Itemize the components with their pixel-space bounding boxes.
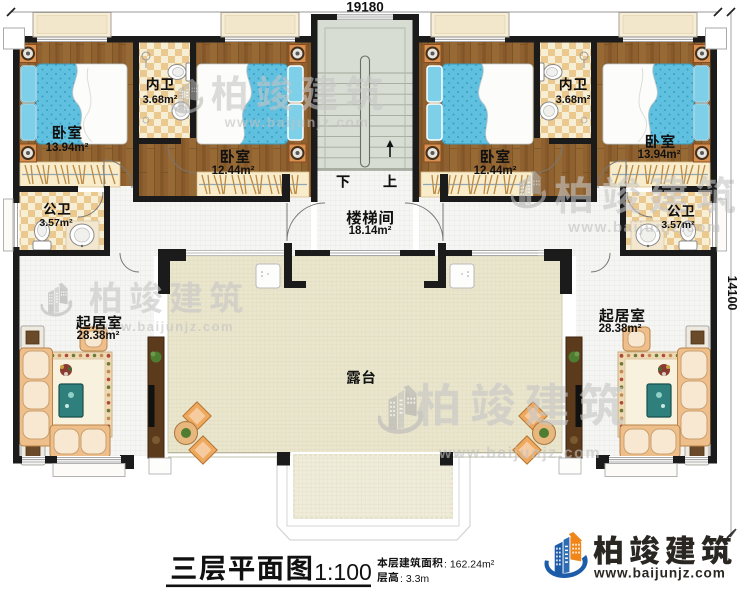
- svg-text:www.baijunjz.com: www.baijunjz.com: [224, 114, 370, 130]
- svg-text:14100: 14100: [725, 276, 739, 311]
- svg-text:www.baijunjz.com: www.baijunjz.com: [567, 219, 721, 236]
- svg-text:13.94m²: 13.94m²: [638, 149, 681, 161]
- svg-text:: 162.24m²: : 162.24m²: [444, 559, 495, 571]
- svg-text:19180: 19180: [346, 0, 384, 15]
- svg-text:28.38m²: 28.38m²: [77, 330, 120, 342]
- svg-text:1:100: 1:100: [314, 559, 372, 585]
- svg-text:www.baijunjz.com: www.baijunjz.com: [438, 445, 601, 462]
- svg-text:13.94m²: 13.94m²: [46, 142, 89, 154]
- svg-text:3.68m²: 3.68m²: [143, 94, 178, 106]
- svg-text:3.57m²: 3.57m²: [661, 219, 695, 231]
- svg-text:3.68m²: 3.68m²: [556, 94, 591, 106]
- svg-text:3.57m²: 3.57m²: [39, 217, 73, 229]
- svg-text:12.44m²: 12.44m²: [212, 165, 255, 177]
- svg-text:: 3.3m: : 3.3m: [400, 573, 429, 585]
- svg-text:12.44m²: 12.44m²: [474, 165, 517, 177]
- svg-text:28.38m²: 28.38m²: [599, 323, 642, 335]
- svg-text:www.baijunjz.com: www.baijunjz.com: [593, 566, 726, 581]
- svg-text:18.14m²: 18.14m²: [349, 225, 392, 237]
